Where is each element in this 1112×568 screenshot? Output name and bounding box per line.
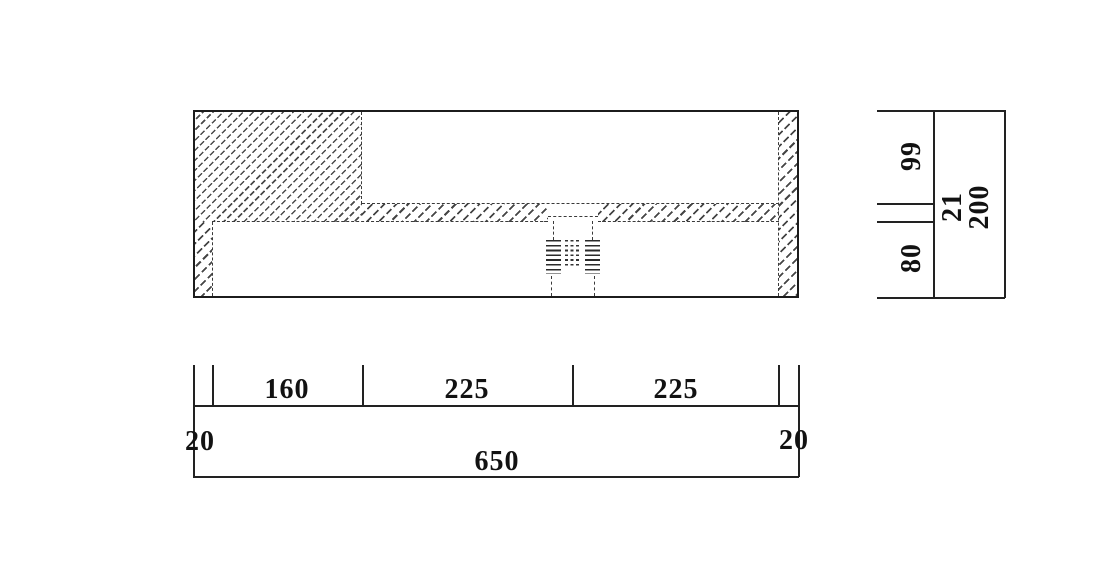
drain-threads-right [585, 240, 600, 274]
drain-threads-left [546, 240, 561, 274]
hatch-top-left-block [194, 112, 362, 222]
bottom-dim-end-left [193, 365, 195, 477]
dim-label-height-middle: 21 [939, 192, 967, 222]
dim-label-overall-width: 650 [475, 448, 520, 476]
bottom-dim-end-right [798, 365, 800, 477]
drain-threads-center [565, 240, 581, 268]
hidden-edge-left-wall-inner [212, 222, 213, 296]
dim-label-segment-3: 225 [654, 376, 699, 404]
hidden-edge-drain-hole [548, 216, 598, 217]
hidden-edge-slab-top [362, 203, 779, 204]
hatch-right-wall [779, 112, 797, 297]
right-dim-line-outer [1004, 110, 1006, 298]
outline-right-edge [797, 110, 799, 298]
right-dim-tick-mid-upper [877, 203, 934, 205]
dim-label-left-wall: 20 [185, 428, 215, 456]
right-dim-line-inner [933, 110, 935, 298]
bottom-dim-tick-2 [362, 365, 364, 406]
drain-pipe-left-upper [553, 221, 554, 240]
dim-label-height-upper: 99 [898, 141, 926, 171]
bottom-dim-tick-4 [778, 365, 780, 406]
hatch-left-wall-lower [194, 222, 212, 297]
hidden-edge-slab-bottom-right [598, 221, 779, 222]
dim-label-height-lower: 80 [898, 243, 926, 273]
outline-left-edge [193, 110, 195, 298]
hidden-edge-slab-bottom-left [212, 221, 548, 222]
dim-label-right-wall: 20 [779, 427, 809, 455]
right-dim-tick-mid-lower [877, 221, 934, 223]
bottom-dim-tick-3 [572, 365, 574, 406]
drain-pipe-left-lower [551, 276, 552, 296]
bottom-dim-line-upper [193, 405, 799, 407]
dim-label-height-overall: 200 [966, 185, 994, 230]
hidden-edge-block-right [361, 112, 362, 204]
bottom-dim-tick-1 [212, 365, 214, 406]
drain-pipe-right-upper [592, 221, 593, 240]
hatch-slab-left [362, 204, 548, 222]
dim-label-segment-2: 225 [445, 376, 490, 404]
right-dim-tick-bottom [877, 297, 1005, 299]
right-dim-tick-top [877, 110, 1005, 112]
hidden-edge-right-wall-inner [778, 112, 779, 296]
outline-top-edge [193, 110, 799, 112]
drain-pipe-right-lower [594, 276, 595, 296]
hatch-slab-right [598, 204, 779, 222]
outline-bottom-edge [193, 296, 799, 298]
dim-label-segment-1: 160 [265, 376, 310, 404]
cad-drawing: 99 80 21 200 160 225 225 20 20 650 [0, 0, 1112, 568]
